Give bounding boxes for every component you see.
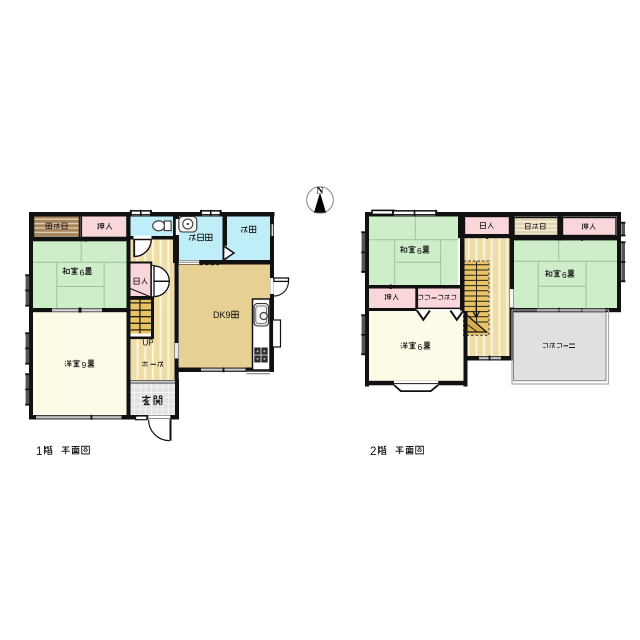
svg-text:6: 6: [418, 342, 423, 352]
svg-text:1: 1: [36, 446, 42, 458]
svg-text:6: 6: [562, 270, 567, 280]
svg-text:DK9: DK9: [213, 310, 231, 320]
svg-text:N: N: [317, 187, 324, 197]
svg-text:UP: UP: [143, 339, 154, 348]
svg-text:6: 6: [417, 246, 422, 256]
svg-text:6: 6: [80, 268, 85, 278]
svg-text:2: 2: [370, 446, 376, 458]
svg-text:9: 9: [82, 360, 87, 370]
